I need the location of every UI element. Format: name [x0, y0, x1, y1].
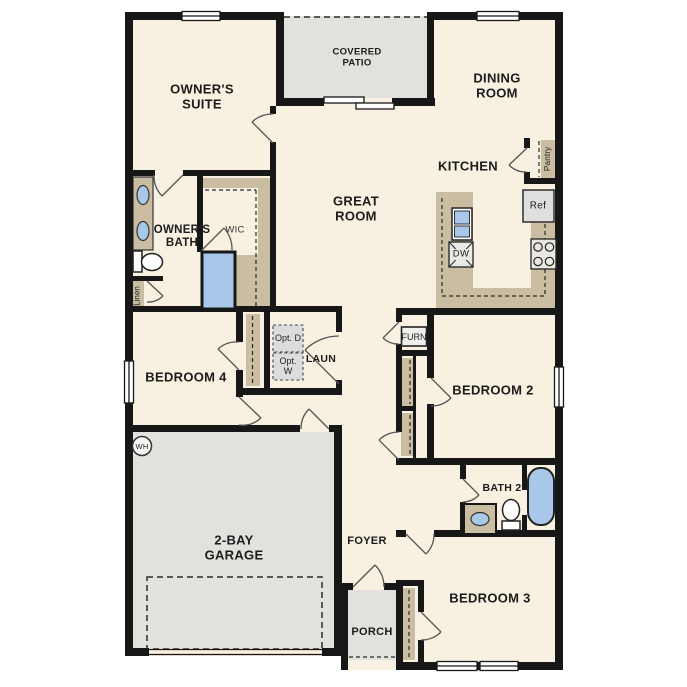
sliding-door-panel-inner — [356, 103, 394, 109]
wic-shelf-side — [258, 188, 270, 308]
bath2-sink — [471, 513, 489, 526]
sliding-door-panel-outer — [324, 97, 364, 103]
wic-shelf-top — [203, 178, 270, 188]
room-label-bedroom2: BEDROOM 2 — [428, 384, 558, 399]
fixture-label-dw: DW — [453, 250, 469, 261]
toilet-bowl-bath2 — [503, 500, 520, 521]
toilet-tank-bath2 — [502, 521, 520, 530]
room-label-dining-room: DINING ROOM — [466, 71, 528, 100]
room-label-kitchen: KITCHEN — [413, 160, 523, 175]
kitchen-sink-basin-1 — [455, 211, 470, 224]
room-label-great-room: GREAT ROOM — [326, 194, 386, 223]
hall-closet-shelf-lower — [401, 413, 413, 456]
fixture-label-opt-washer: Opt. W — [275, 356, 301, 376]
vanity-sink-1 — [137, 186, 149, 205]
fixture-label-wh: WH — [135, 442, 148, 450]
room-label-wic: WIC — [225, 226, 244, 237]
fixture-label-ref: Ref — [530, 200, 546, 211]
toilet-bowl-owners — [142, 254, 163, 271]
fixture-label-pantry: Pantry — [543, 147, 553, 172]
room-label-covered-patio: COVERED PATIO — [329, 47, 385, 68]
bathtub — [528, 468, 554, 525]
floor-plan-drawing — [0, 0, 687, 687]
vanity-sink-2 — [137, 222, 149, 241]
fixture-label-opt-dryer: Opt. D — [275, 333, 301, 343]
room-label-porch: PORCH — [351, 626, 392, 638]
range-stove — [531, 239, 556, 269]
fixture-label-linen: Linen — [134, 286, 143, 306]
hall-closet-shelf-upper — [401, 358, 413, 406]
room-label-owners-bath: OWNER'S BATH — [151, 224, 213, 250]
shower — [202, 252, 235, 309]
room-label-bath2: BATH 2 — [482, 483, 522, 495]
room-label-bedroom4: BEDROOM 4 — [121, 371, 251, 386]
kitchen-sink-basin-2 — [455, 226, 470, 237]
room-label-owners-suite: OWNER'S SUITE — [158, 82, 246, 111]
room-label-bedroom3: BEDROOM 3 — [425, 592, 555, 607]
room-label-foyer: FOYER — [347, 535, 386, 547]
floor-plan: OWNER'S SUITE COVERED PATIO DINING ROOM … — [0, 0, 687, 687]
toilet-tank-owners — [133, 251, 142, 272]
room-label-garage: 2-BAY GARAGE — [198, 533, 270, 562]
fixture-label-furn: FURN — [402, 331, 427, 341]
room-label-laundry: LAUN — [306, 354, 336, 366]
